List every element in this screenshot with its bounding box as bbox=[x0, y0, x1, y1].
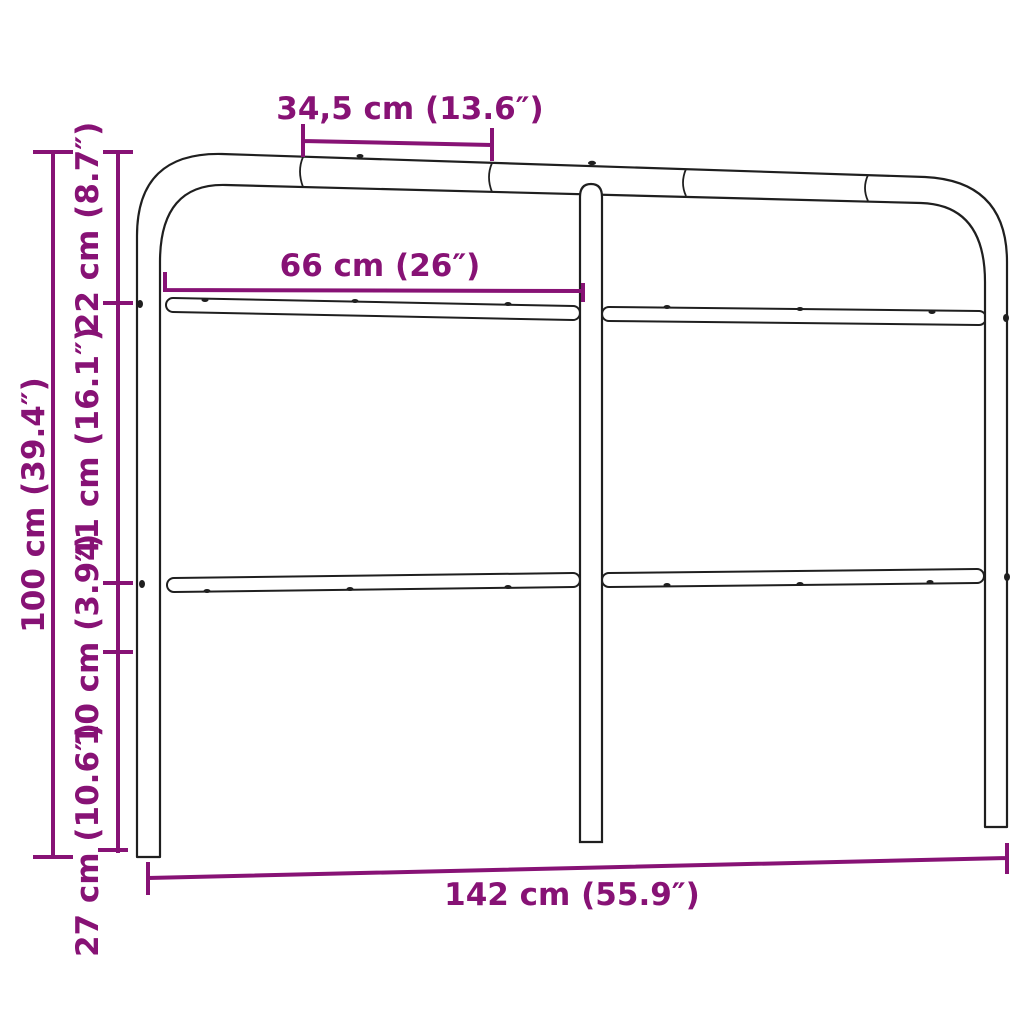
screw-dots bbox=[137, 154, 1010, 593]
upper-rail bbox=[173, 305, 979, 318]
dim-label-upper-to-lower-rail: 41 cm (16.1″) bbox=[70, 327, 106, 561]
lower-rail bbox=[174, 576, 977, 585]
center-post bbox=[580, 184, 602, 842]
dimension-lines bbox=[33, 124, 1007, 895]
dim-label-top-segment: 34,5 cm (13.6″) bbox=[276, 91, 543, 127]
dim-label-total-width: 142 cm (55.9″) bbox=[444, 877, 700, 913]
headboard-dimension-diagram: 34,5 cm (13.6″) 66 cm (26″) 142 cm (55.9… bbox=[0, 0, 1024, 1024]
dim-label-total-height: 100 cm (39.4″) bbox=[16, 377, 52, 633]
dim-label-leg-height: 27 cm (10.6″) bbox=[70, 723, 106, 957]
headboard-frame bbox=[137, 154, 1010, 857]
diagram-canvas: 34,5 cm (13.6″) 66 cm (26″) 142 cm (55.9… bbox=[0, 0, 1024, 1024]
frame-tube bbox=[137, 154, 1007, 857]
dim-label-panel-width: 66 cm (26″) bbox=[280, 248, 481, 284]
dim-label-lower-rail-gap: 10 cm (3.9″) bbox=[70, 534, 106, 747]
dim-label-top-to-upper-rail: 22 cm (8.7″) bbox=[70, 122, 106, 335]
dim-line-top-segment bbox=[303, 124, 492, 161]
